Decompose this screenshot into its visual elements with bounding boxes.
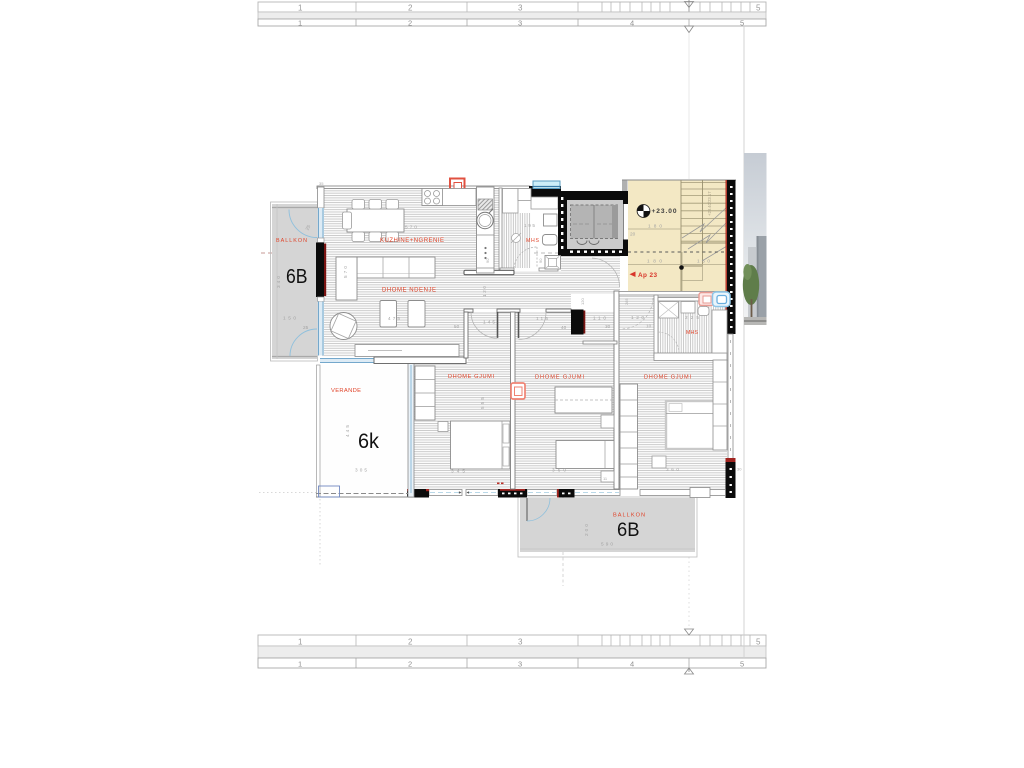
svg-text:25: 25 <box>303 325 309 330</box>
svg-text:+23.40/23.17: +23.40/23.17 <box>707 191 712 216</box>
svg-text:590: 590 <box>601 542 613 547</box>
svg-text:6B: 6B <box>617 519 640 541</box>
svg-text:90: 90 <box>538 258 543 263</box>
svg-text:570: 570 <box>405 225 417 230</box>
svg-text:+23.00: +23.00 <box>652 208 677 215</box>
svg-text:115: 115 <box>536 316 548 321</box>
svg-text:30: 30 <box>605 324 611 329</box>
svg-text:200: 200 <box>584 524 589 536</box>
svg-text:345: 345 <box>451 469 465 474</box>
svg-text:120: 120 <box>482 286 487 297</box>
svg-text:6B: 6B <box>286 265 308 288</box>
svg-text:570: 570 <box>343 266 348 278</box>
svg-text:180: 180 <box>647 259 662 264</box>
svg-text:225: 225 <box>685 315 699 320</box>
svg-text:Ap 23: Ap 23 <box>638 272 657 279</box>
svg-text:1: 1 <box>298 660 302 669</box>
svg-text:305: 305 <box>355 468 367 473</box>
svg-text:40: 40 <box>561 325 567 330</box>
svg-text:285: 285 <box>624 298 629 305</box>
svg-text:35: 35 <box>319 181 324 186</box>
svg-text:195: 195 <box>524 223 535 228</box>
svg-text:BALLKON: BALLKON <box>276 238 307 244</box>
svg-text:20: 20 <box>630 232 636 237</box>
svg-text:2: 2 <box>408 19 412 28</box>
svg-text:445: 445 <box>345 425 350 437</box>
svg-text:180: 180 <box>648 224 662 229</box>
svg-text:3: 3 <box>518 4 523 13</box>
svg-text:2: 2 <box>408 4 413 13</box>
svg-text:360: 360 <box>552 468 566 473</box>
svg-text:2: 2 <box>408 660 412 669</box>
svg-text:DHOME GJUMI: DHOME GJUMI <box>448 374 494 380</box>
svg-text:110: 110 <box>593 316 606 321</box>
svg-text:3: 3 <box>518 660 522 669</box>
svg-text:2: 2 <box>408 638 413 647</box>
svg-text:4: 4 <box>630 19 634 28</box>
svg-text:150: 150 <box>697 259 710 264</box>
svg-text:555: 555 <box>480 397 485 409</box>
svg-text:475: 475 <box>388 316 400 321</box>
svg-text:30: 30 <box>737 467 742 472</box>
svg-text:5: 5 <box>756 4 761 13</box>
svg-text:3: 3 <box>518 19 522 28</box>
svg-text:6k: 6k <box>358 429 379 453</box>
svg-text:120: 120 <box>580 298 585 305</box>
svg-text:MHS: MHS <box>526 238 540 244</box>
svg-text:360: 360 <box>666 467 679 472</box>
svg-text:5: 5 <box>756 638 761 647</box>
svg-text:5: 5 <box>740 660 744 669</box>
svg-text:150: 150 <box>283 316 296 321</box>
svg-text:5: 5 <box>740 19 744 28</box>
svg-text:10: 10 <box>646 324 652 329</box>
svg-text:KUZHINE+NGRENIE: KUZHINE+NGRENIE <box>380 238 444 244</box>
svg-text:90: 90 <box>485 258 490 263</box>
svg-text:DHOME GJUMI: DHOME GJUMI <box>535 375 584 381</box>
svg-text:1: 1 <box>298 19 302 28</box>
svg-text:145: 145 <box>483 320 495 325</box>
svg-text:DHOME NDENJE: DHOME NDENJE <box>382 288 436 294</box>
svg-text:BALLKON: BALLKON <box>613 513 645 519</box>
svg-text:3: 3 <box>518 638 523 647</box>
svg-text:120: 120 <box>631 315 644 320</box>
svg-text:340: 340 <box>276 276 281 288</box>
svg-text:4: 4 <box>630 660 634 669</box>
svg-text:50: 50 <box>454 324 460 329</box>
svg-text:DHOME GJUMI: DHOME GJUMI <box>644 375 691 381</box>
svg-text:1: 1 <box>298 638 303 647</box>
svg-text:VERANDE: VERANDE <box>331 388 361 394</box>
svg-text:1: 1 <box>298 4 303 13</box>
svg-text:MHS: MHS <box>686 330 699 336</box>
